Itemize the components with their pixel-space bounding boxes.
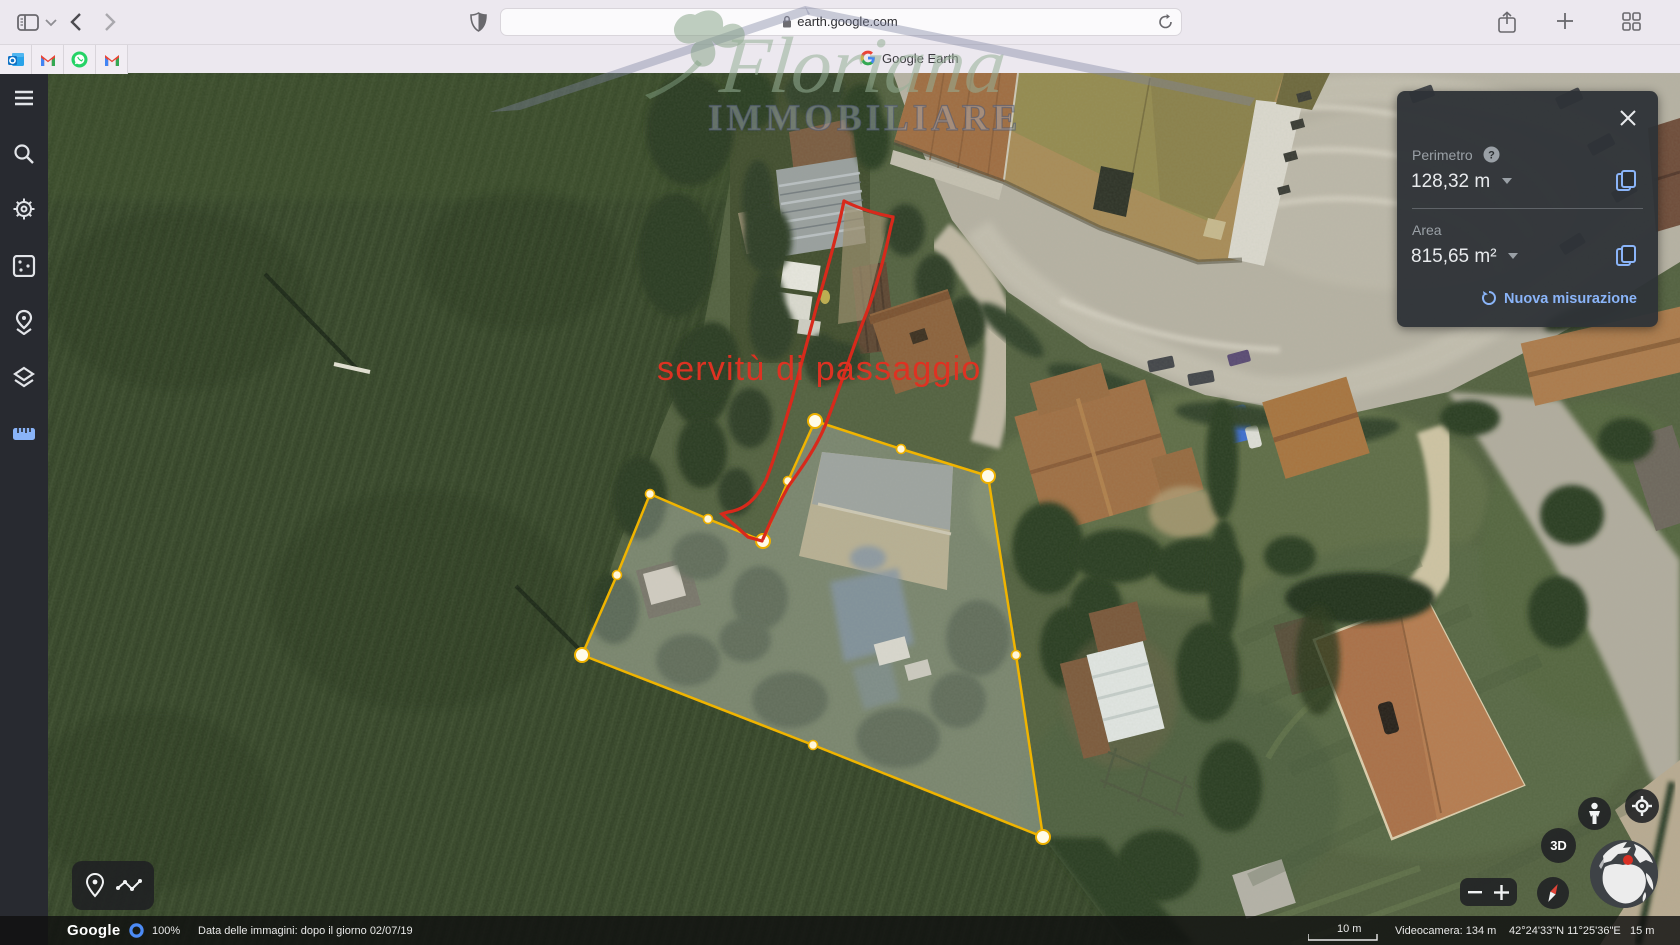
svg-text:?: ? xyxy=(1488,150,1495,162)
svg-text:servitù di passaggio: servitù di passaggio xyxy=(657,350,982,388)
